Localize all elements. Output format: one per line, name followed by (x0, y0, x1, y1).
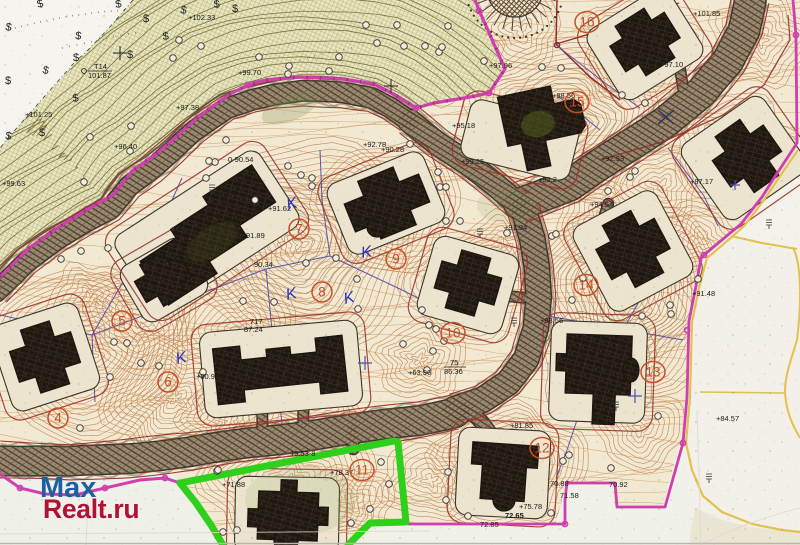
svg-text:Realt.ru: Realt.ru (43, 494, 139, 524)
